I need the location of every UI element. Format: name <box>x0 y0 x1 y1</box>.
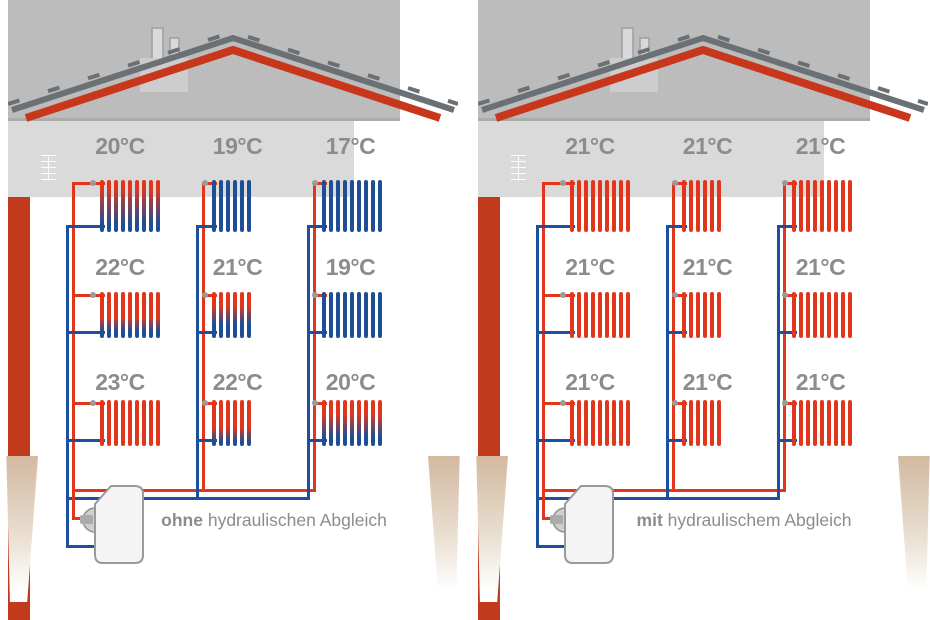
radiator-fin <box>689 400 693 446</box>
radiator-fin <box>619 292 623 338</box>
radiator-fin <box>584 292 588 338</box>
radiator-fin <box>820 400 824 446</box>
temperature-label: 21°C <box>765 369 876 396</box>
radiator-fin <box>156 180 160 232</box>
radiator-fin <box>703 180 707 232</box>
radiator-fin <box>233 400 237 446</box>
pipe-supply-main <box>72 489 316 492</box>
radiator-fin <box>336 400 340 446</box>
radiator-fin <box>820 292 824 338</box>
pipe-return-boiler-drop <box>66 497 69 548</box>
radiator-fin <box>689 292 693 338</box>
radiator-fin <box>247 292 251 338</box>
radiator-fin <box>848 292 852 338</box>
radiator-fin <box>240 292 244 338</box>
radiator-fin <box>114 292 118 338</box>
house-without-balancing: 20°C19°C17°C22°C21°C19°C23°C22°C20°Cohne… <box>8 0 458 620</box>
radiator-fin <box>371 180 375 232</box>
radiator-manifold <box>792 292 796 338</box>
radiator-fin <box>577 292 581 338</box>
pipe-return-boiler-drop <box>536 497 539 548</box>
radiator-fin <box>135 292 139 338</box>
radiator-fin <box>598 400 602 446</box>
radiator <box>570 292 630 338</box>
radiator-fin <box>364 400 368 446</box>
radiator-fin <box>834 400 838 446</box>
radiator-fin <box>806 180 810 232</box>
temperature-label: 21°C <box>662 369 753 396</box>
radiator-fin <box>703 292 707 338</box>
brick-pattern <box>511 298 526 324</box>
radiator <box>322 180 382 232</box>
temperature-label: 20°C <box>60 133 180 160</box>
radiator-fin <box>591 400 595 446</box>
caption: ohne hydraulischen Abgleich <box>146 510 402 531</box>
radiator-fin <box>378 292 382 338</box>
pipe-return-main <box>536 497 780 500</box>
radiator-fin <box>605 180 609 232</box>
radiator-fin <box>371 292 375 338</box>
house-with-balancing: 21°C21°C21°C21°C21°C21°C21°C21°C21°Cmit … <box>478 0 928 620</box>
radiator-fin <box>364 292 368 338</box>
brick-pattern <box>879 368 894 394</box>
temperature-label: 19°C <box>295 254 406 281</box>
radiator-fin <box>710 400 714 446</box>
radiator <box>212 292 251 338</box>
radiator-fin <box>717 180 721 232</box>
temperature-label: 21°C <box>765 133 876 160</box>
radiator <box>682 400 721 446</box>
caption-rest: hydraulischem Abgleich <box>663 510 852 530</box>
pipe-supply-main <box>542 489 786 492</box>
brick-pattern <box>41 420 56 446</box>
radiator-fin <box>577 180 581 232</box>
radiator-fin <box>107 400 111 446</box>
radiator-manifold <box>100 400 104 446</box>
radiator-fin <box>689 180 693 232</box>
radiator-fin <box>813 180 817 232</box>
radiator-fin <box>135 180 139 232</box>
radiator-manifold <box>570 180 574 232</box>
temperature-label: 21°C <box>530 369 650 396</box>
radiator-fin <box>710 180 714 232</box>
radiator-manifold <box>322 180 326 232</box>
radiator-fin <box>336 180 340 232</box>
radiator-fin <box>107 292 111 338</box>
radiator-fin <box>336 292 340 338</box>
radiator-fin <box>626 180 630 232</box>
radiator-fin <box>142 292 146 338</box>
pipe-return-boiler-in <box>536 545 571 548</box>
pipe-supply-boiler-drop <box>72 489 75 520</box>
radiator-fin <box>357 400 361 446</box>
radiator-fin <box>813 400 817 446</box>
radiator <box>322 400 382 446</box>
radiator-fin <box>584 400 588 446</box>
radiator-fin <box>357 292 361 338</box>
radiator-fin <box>703 400 707 446</box>
radiator-manifold <box>682 180 686 232</box>
radiator <box>570 400 630 446</box>
brick-pattern <box>511 155 526 181</box>
radiator-fin <box>612 400 616 446</box>
radiator-fin <box>813 292 817 338</box>
basement <box>8 0 400 121</box>
caption-bold-word: mit <box>637 510 663 530</box>
radiator-fin <box>149 180 153 232</box>
radiator <box>212 180 251 232</box>
radiator-fin <box>626 400 630 446</box>
radiator-fin <box>378 400 382 446</box>
radiator-fin <box>226 400 230 446</box>
radiator-fin <box>841 292 845 338</box>
brick-pattern <box>409 368 424 394</box>
radiator-fin <box>619 400 623 446</box>
radiator-fin <box>247 180 251 232</box>
radiator-fin <box>128 180 132 232</box>
radiator <box>792 180 852 232</box>
brick-pattern <box>511 420 526 446</box>
temperature-label: 21°C <box>662 133 753 160</box>
radiator-fin <box>240 180 244 232</box>
radiator-fin <box>827 180 831 232</box>
radiator-fin <box>612 292 616 338</box>
brick-pattern <box>41 155 56 181</box>
radiator-fin <box>240 400 244 446</box>
radiator-fin <box>591 180 595 232</box>
radiator-fin <box>343 400 347 446</box>
radiator <box>682 180 721 232</box>
radiator-manifold <box>100 180 104 232</box>
radiator-fin <box>219 292 223 338</box>
radiator-fin <box>696 292 700 338</box>
radiator-fin <box>233 292 237 338</box>
radiator-manifold <box>570 292 574 338</box>
caption-rest: hydraulischen Abgleich <box>203 510 387 530</box>
radiator-fin <box>135 400 139 446</box>
temperature-label: 23°C <box>60 369 180 396</box>
radiator-fin <box>121 292 125 338</box>
radiator-fin <box>806 292 810 338</box>
radiator-manifold <box>322 400 326 446</box>
pipe-supply-boiler-in <box>72 517 101 520</box>
brick-pattern <box>409 148 424 174</box>
radiator-fin <box>799 180 803 232</box>
radiator-fin <box>378 180 382 232</box>
radiator <box>792 292 852 338</box>
radiator-fin <box>114 400 118 446</box>
radiator-fin <box>710 292 714 338</box>
radiator-fin <box>329 400 333 446</box>
radiator-manifold <box>100 292 104 338</box>
hydraulic-balancing-infographic: 20°C19°C17°C22°C21°C19°C23°C22°C20°Cohne… <box>0 0 930 620</box>
radiator-fin <box>827 400 831 446</box>
radiator-fin <box>357 180 361 232</box>
pump-icon <box>83 508 107 532</box>
radiator-manifold <box>322 292 326 338</box>
radiator-fin <box>605 400 609 446</box>
temperature-label: 21°C <box>662 254 753 281</box>
radiator <box>100 292 160 338</box>
pump-icon <box>553 508 577 532</box>
radiator-fin <box>142 180 146 232</box>
radiator <box>682 292 721 338</box>
radiator-fin <box>848 400 852 446</box>
radiator-fin <box>799 400 803 446</box>
radiator-manifold <box>682 400 686 446</box>
temperature-label: 21°C <box>530 254 650 281</box>
temperature-label: 21°C <box>530 133 650 160</box>
radiator-fin <box>717 400 721 446</box>
brick-pattern <box>879 432 894 458</box>
radiator-fin <box>219 400 223 446</box>
radiator-fin <box>364 180 368 232</box>
radiator-fin <box>233 180 237 232</box>
radiator-fin <box>128 292 132 338</box>
radiator-fin <box>806 400 810 446</box>
radiator-fin <box>350 292 354 338</box>
radiator-fin <box>717 292 721 338</box>
radiator-manifold <box>212 400 216 446</box>
radiator-fin <box>219 180 223 232</box>
radiator <box>212 400 251 446</box>
radiator-fin <box>612 180 616 232</box>
radiator-fin <box>696 400 700 446</box>
temperature-label: 22°C <box>60 254 180 281</box>
radiator-fin <box>114 180 118 232</box>
radiator-fin <box>156 400 160 446</box>
radiator-fin <box>799 292 803 338</box>
radiator-fin <box>329 292 333 338</box>
radiator <box>792 400 852 446</box>
radiator-fin <box>820 180 824 232</box>
radiator-fin <box>598 180 602 232</box>
pipe-return-boiler-in <box>66 545 101 548</box>
pipe-return-main <box>66 497 310 500</box>
radiator <box>100 180 160 232</box>
radiator-fin <box>343 292 347 338</box>
radiator-fin <box>329 180 333 232</box>
soil-band-right <box>428 456 464 602</box>
radiator-fin <box>149 400 153 446</box>
radiator-fin <box>841 400 845 446</box>
radiator-fin <box>619 180 623 232</box>
temperature-label: 17°C <box>295 133 406 160</box>
radiator-fin <box>834 180 838 232</box>
radiator-manifold <box>682 292 686 338</box>
caption: mit hydraulischem Abgleich <box>616 510 872 531</box>
radiator-fin <box>827 292 831 338</box>
temperature-label: 20°C <box>295 369 406 396</box>
pipe-supply-boiler-drop <box>542 489 545 520</box>
radiator-fin <box>696 180 700 232</box>
radiator-manifold <box>212 292 216 338</box>
radiator-fin <box>226 180 230 232</box>
brick-pattern <box>41 298 56 324</box>
radiator-fin <box>226 292 230 338</box>
pipe-supply-boiler-in <box>542 517 571 520</box>
soil-band-right <box>898 456 930 602</box>
radiator-fin <box>107 180 111 232</box>
radiator-fin <box>149 292 153 338</box>
radiator-manifold <box>212 180 216 232</box>
radiator-fin <box>128 400 132 446</box>
radiator-fin <box>605 292 609 338</box>
radiator-fin <box>848 180 852 232</box>
radiator-fin <box>841 180 845 232</box>
radiator-fin <box>156 292 160 338</box>
radiator-manifold <box>570 400 574 446</box>
radiator-fin <box>350 400 354 446</box>
radiator-fin <box>121 400 125 446</box>
radiator-fin <box>247 400 251 446</box>
radiator-manifold <box>792 400 796 446</box>
radiator-fin <box>121 180 125 232</box>
temperature-label: 22°C <box>192 369 283 396</box>
temperature-label: 19°C <box>192 133 283 160</box>
radiator-fin <box>350 180 354 232</box>
radiator-fin <box>584 180 588 232</box>
radiator-fin <box>577 400 581 446</box>
radiator <box>100 400 160 446</box>
temperature-label: 21°C <box>765 254 876 281</box>
brick-pattern <box>879 148 894 174</box>
radiator <box>570 180 630 232</box>
brick-pattern <box>409 432 424 458</box>
basement <box>478 0 870 121</box>
temperature-label: 21°C <box>192 254 283 281</box>
radiator-fin <box>626 292 630 338</box>
radiator <box>322 292 382 338</box>
caption-bold-word: ohne <box>161 510 203 530</box>
radiator-fin <box>598 292 602 338</box>
radiator-fin <box>834 292 838 338</box>
radiator-manifold <box>792 180 796 232</box>
radiator-fin <box>591 292 595 338</box>
radiator-fin <box>371 400 375 446</box>
radiator-fin <box>343 180 347 232</box>
radiator-fin <box>142 400 146 446</box>
